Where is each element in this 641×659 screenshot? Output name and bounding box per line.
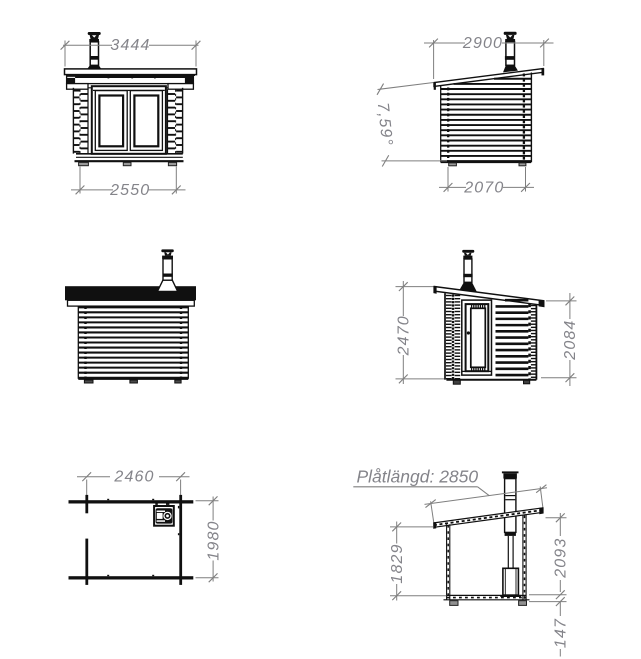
svg-text:147: 147 xyxy=(552,618,569,648)
svg-text:3444: 3444 xyxy=(110,37,150,54)
svg-text:2084: 2084 xyxy=(562,319,579,360)
svg-text:Plåtlängd: 2850: Plåtlängd: 2850 xyxy=(357,467,479,487)
svg-text:2900: 2900 xyxy=(462,35,503,52)
svg-text:2550: 2550 xyxy=(109,182,150,199)
svg-text:2460: 2460 xyxy=(113,469,154,486)
svg-text:1829: 1829 xyxy=(389,543,406,583)
svg-text:2070: 2070 xyxy=(463,179,504,196)
svg-text:2093: 2093 xyxy=(553,538,570,579)
svg-text:2470: 2470 xyxy=(395,315,412,356)
svg-text:1980: 1980 xyxy=(205,520,222,560)
